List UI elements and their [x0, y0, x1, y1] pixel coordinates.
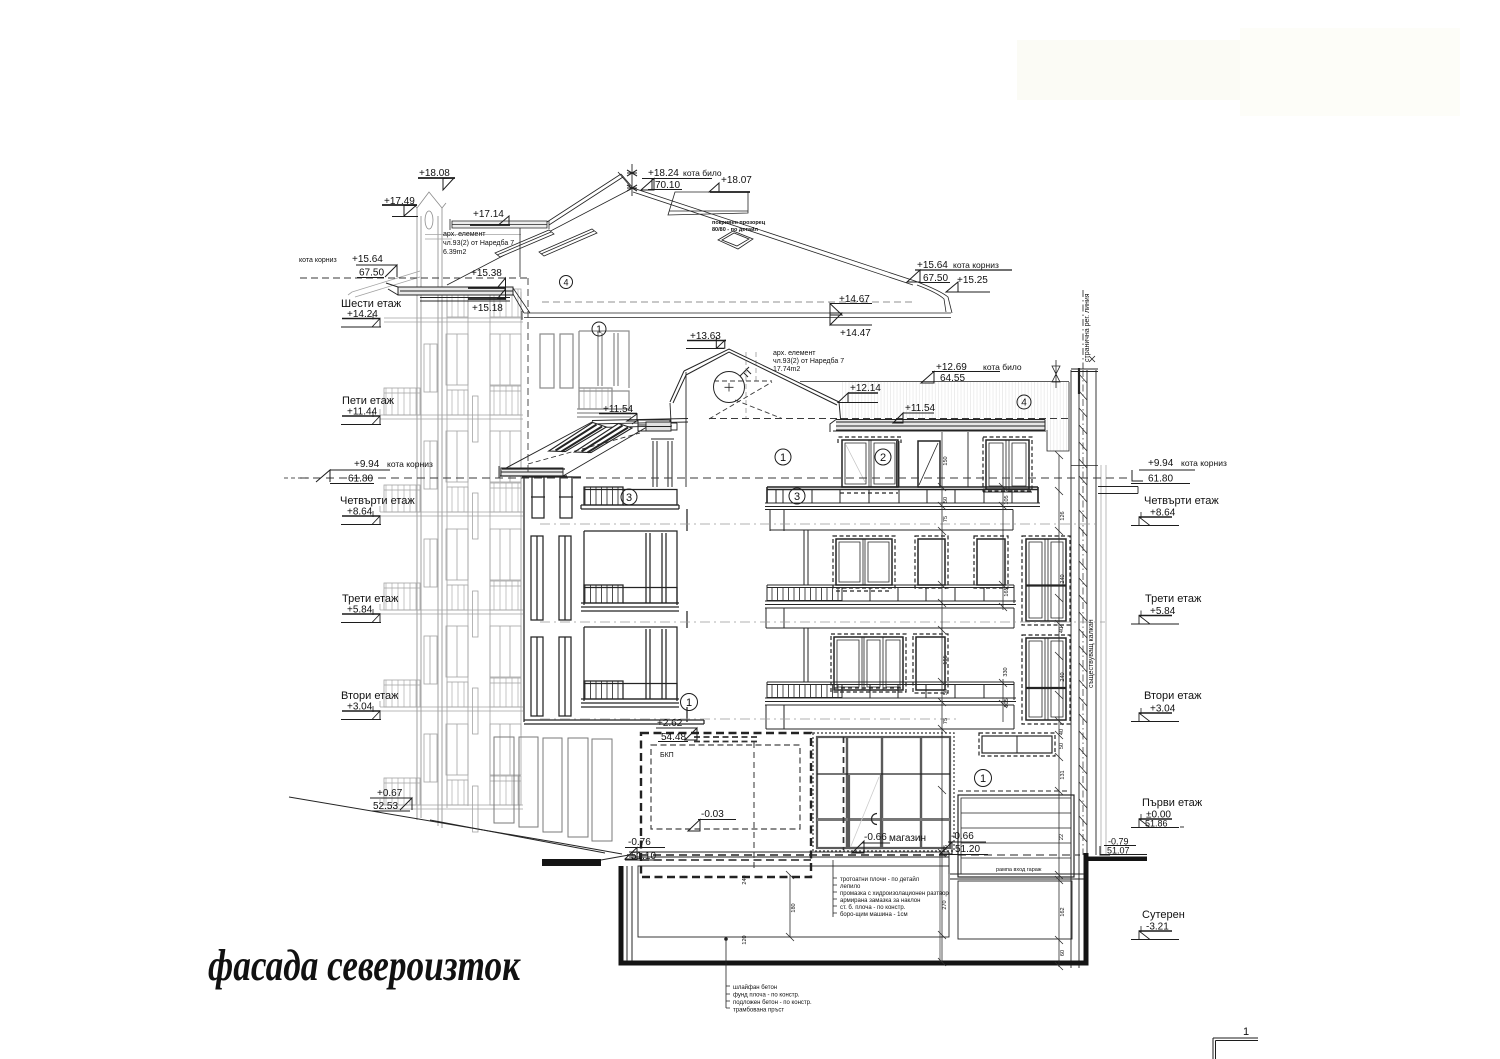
svg-text:магазин: магазин [889, 833, 926, 844]
svg-text:-0.66: -0.66 [864, 832, 887, 843]
svg-text:64.55: 64.55 [940, 373, 965, 384]
svg-text:+5.84: +5.84 [1150, 606, 1176, 617]
svg-text:+8.64: +8.64 [1150, 508, 1176, 519]
svg-text:1: 1 [686, 697, 692, 709]
svg-text:126: 126 [1060, 511, 1066, 520]
svg-text:120: 120 [742, 935, 748, 944]
svg-text:съществуващ калкан: съществуващ калкан [1088, 619, 1095, 688]
svg-text:чл.93(2) от Наредба 7: чл.93(2) от Наредба 7 [443, 239, 514, 247]
svg-text:арх. елемент: арх. елемент [773, 350, 816, 357]
svg-text:армирана замазка за наклон: армирана замазка за наклон [840, 898, 920, 904]
svg-text:Пети етаж: Пети етаж [342, 395, 395, 407]
svg-text:-3.21: -3.21 [1146, 922, 1169, 933]
svg-text:-0.76: -0.76 [628, 837, 651, 848]
svg-text:155: 155 [943, 655, 949, 664]
svg-text:4: 4 [1021, 398, 1027, 409]
svg-text:+14.24: +14.24 [347, 309, 378, 320]
svg-text:кота корниз: кота корниз [953, 260, 999, 270]
svg-text:+17.14: +17.14 [473, 209, 504, 220]
svg-text:4: 4 [563, 278, 568, 288]
svg-text:шлайфан бетон: шлайфан бетон [733, 984, 777, 991]
svg-text:трамбована пръст: трамбована пръст [733, 1008, 784, 1014]
svg-text:Трети етаж: Трети етаж [342, 593, 399, 605]
svg-text:240: 240 [1060, 574, 1066, 583]
svg-text:+12.69: +12.69 [936, 362, 967, 373]
svg-text:105: 105 [1004, 495, 1010, 504]
svg-text:+11.54: +11.54 [905, 403, 936, 414]
svg-text:кота корниз: кота корниз [387, 459, 433, 469]
svg-text:+18.07: +18.07 [721, 175, 752, 186]
svg-text:-0.66: -0.66 [951, 831, 974, 842]
svg-text:6.39m2: 6.39m2 [443, 249, 466, 256]
svg-text:3: 3 [794, 491, 800, 503]
svg-text:+18.08: +18.08 [419, 168, 450, 179]
svg-text:270: 270 [942, 900, 948, 909]
svg-text:80/80 - по детайл: 80/80 - по детайл [712, 226, 758, 233]
svg-text:50: 50 [943, 689, 949, 695]
svg-text:50: 50 [1059, 743, 1065, 749]
svg-text:+0.67: +0.67 [377, 788, 403, 799]
svg-text:+14.67: +14.67 [839, 294, 870, 305]
svg-text:150: 150 [943, 456, 949, 465]
svg-text:+15.64: +15.64 [352, 254, 383, 265]
svg-text:75: 75 [943, 718, 949, 724]
svg-text:70.10: 70.10 [655, 180, 680, 191]
svg-text:Четвърти етаж: Четвърти етаж [340, 495, 415, 507]
svg-text:странична рег. линия: странична рег. линия [1084, 293, 1091, 362]
svg-text:240: 240 [1060, 672, 1066, 681]
svg-text:240: 240 [742, 875, 748, 884]
svg-text:+15.38: +15.38 [471, 268, 502, 279]
svg-text:1: 1 [596, 325, 602, 336]
svg-text:кота корниз: кота корниз [299, 257, 337, 264]
svg-text:+15.25: +15.25 [957, 275, 988, 286]
svg-text:105: 105 [1004, 698, 1010, 707]
svg-text:тротоатни плочи - по детайл: тротоатни плочи - по детайл [840, 876, 920, 883]
svg-text:+15.18: +15.18 [472, 303, 503, 314]
svg-text:Втори етаж: Втори етаж [1144, 690, 1202, 702]
svg-text:40: 40 [1059, 627, 1065, 633]
svg-text:1: 1 [980, 773, 986, 785]
svg-text:51.07: 51.07 [1107, 846, 1130, 856]
svg-text:165: 165 [1004, 587, 1010, 596]
svg-text:промазка с хидроизолационен ра: промазка с хидроизолационен разтвор [840, 891, 949, 897]
svg-text:51.86: 51.86 [1145, 819, 1168, 829]
svg-text:+13.63: +13.63 [690, 331, 721, 342]
svg-text:17.74m2: 17.74m2 [773, 366, 800, 373]
svg-text:61.80: 61.80 [348, 474, 373, 485]
svg-text:67.50: 67.50 [359, 268, 384, 279]
svg-text:1: 1 [780, 452, 786, 464]
svg-text:+8.64: +8.64 [347, 507, 373, 518]
svg-text:подложен бетон - по констр.: подложен бетон - по констр. [733, 1000, 812, 1006]
svg-text:61.80: 61.80 [1148, 474, 1173, 485]
svg-text:Четвърти етаж: Четвърти етаж [1144, 495, 1219, 507]
svg-text:фунд плоча - по констр.: фунд плоча - по констр. [733, 993, 800, 999]
svg-text:1: 1 [1243, 1026, 1249, 1038]
svg-text:Трети етаж: Трети етаж [1145, 593, 1202, 605]
svg-text:Сутерен: Сутерен [1142, 909, 1185, 921]
svg-text:180: 180 [791, 903, 797, 912]
svg-text:кота било: кота било [683, 168, 722, 178]
svg-text:2: 2 [880, 452, 886, 464]
svg-text:131: 131 [1060, 770, 1066, 779]
svg-text:51.10: 51.10 [631, 851, 656, 862]
svg-text:покривен прозорец: покривен прозорец [712, 220, 766, 226]
svg-text:50: 50 [943, 497, 949, 503]
svg-text:+2.62: +2.62 [657, 718, 683, 729]
svg-text:+17.49: +17.49 [384, 196, 415, 207]
svg-text:+15.64: +15.64 [917, 260, 948, 271]
svg-text:52.53: 52.53 [373, 801, 398, 812]
svg-text:рампа вход гараж: рампа вход гараж [996, 867, 1042, 873]
svg-text:+5.84: +5.84 [347, 605, 373, 616]
svg-text:75: 75 [943, 845, 949, 851]
svg-text:+14.47: +14.47 [840, 328, 871, 339]
svg-text:+11.44: +11.44 [347, 407, 378, 418]
svg-text:+18.24: +18.24 [648, 168, 679, 179]
svg-text:54.48: 54.48 [661, 732, 686, 743]
svg-text:51.20: 51.20 [955, 844, 980, 855]
svg-text:60: 60 [1060, 950, 1066, 956]
svg-text:67.50: 67.50 [923, 273, 948, 284]
svg-text:боро-щим машина - 1см: боро-щим машина - 1см [840, 912, 908, 918]
svg-text:кота корниз: кота корниз [1181, 458, 1227, 468]
svg-text:162: 162 [1060, 907, 1066, 916]
svg-text:+3.04: +3.04 [1150, 704, 1176, 715]
svg-text:+9.94: +9.94 [354, 459, 380, 470]
svg-text:40: 40 [1059, 729, 1065, 735]
svg-text:кота било: кота било [983, 362, 1022, 372]
svg-text:фасада североизток: фасада североизток [208, 941, 521, 990]
svg-text:-0.03: -0.03 [701, 809, 724, 820]
svg-text:22: 22 [1059, 834, 1065, 840]
svg-text:+12.14: +12.14 [850, 383, 881, 394]
svg-text:БКП: БКП [660, 752, 674, 759]
svg-text:+9.94: +9.94 [1148, 458, 1174, 469]
svg-text:ст. б. плоча - по констр.: ст. б. плоча - по констр. [840, 905, 906, 911]
svg-text:Първи етаж: Първи етаж [1142, 797, 1203, 809]
svg-text:чл.93(2) от Наредба 7: чл.93(2) от Наредба 7 [773, 357, 844, 365]
svg-text:+11.54: +11.54 [603, 404, 634, 415]
svg-text:+3.04: +3.04 [347, 702, 373, 713]
svg-text:330: 330 [1003, 667, 1009, 676]
svg-text:арх. елемент: арх. елемент [443, 231, 486, 238]
svg-text:75: 75 [943, 516, 949, 522]
svg-text:Втори етаж: Втори етаж [341, 690, 399, 702]
svg-text:3: 3 [626, 492, 632, 504]
svg-text:лепило: лепило [840, 884, 861, 890]
